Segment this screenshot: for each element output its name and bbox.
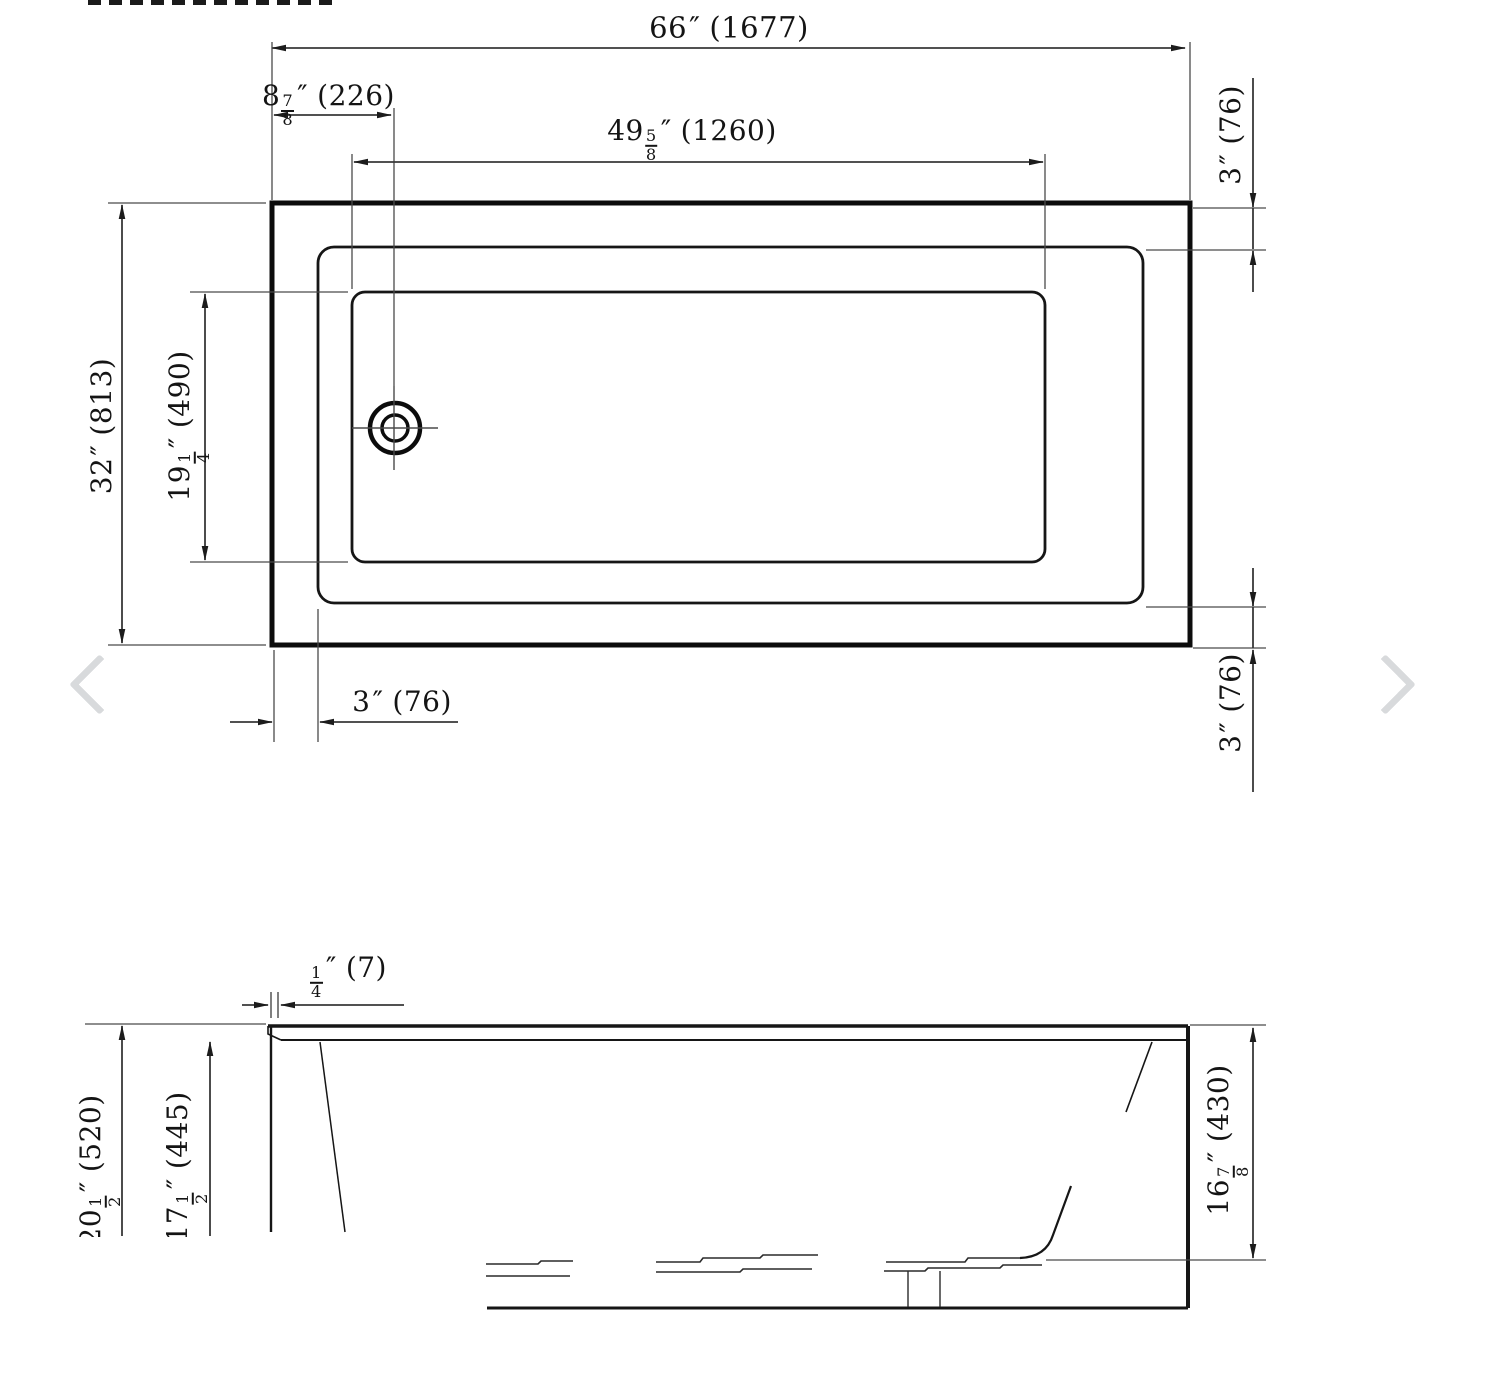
dim-rim-bottom-right: 3″(76)	[1217, 653, 1245, 753]
product-image-viewer: 66″(1677) 878″(226) 4958″(1260) 3″(76) 3…	[0, 0, 1501, 1377]
dim-depth-to-seat: 1678″(430)	[1205, 1064, 1251, 1215]
side-view-floor-lines	[486, 1255, 1042, 1307]
dim-overall-height: 2012″(520)	[77, 1094, 123, 1245]
side-view-dimension-lines	[85, 992, 1266, 1260]
drain-symbol	[352, 386, 438, 470]
bathtub-technical-drawing	[0, 0, 1501, 1377]
dim-rim-top-right: 3″(76)	[1217, 85, 1245, 185]
top-view-outline	[272, 203, 1190, 645]
white-overlay-patch	[0, 1237, 484, 1357]
dim-basin-width: 1914″(490)	[166, 350, 212, 501]
dim-lip-thickness: 14″(7)	[309, 954, 387, 1000]
dim-overall-width: 32″(813)	[88, 358, 116, 494]
dim-basin-length: 4958″(1260)	[607, 117, 777, 163]
dim-drain-offset: 878″(226)	[262, 82, 395, 128]
dim-rim-bottom-left: 3″(76)	[352, 688, 452, 716]
dim-overall-length: 66″(1677)	[649, 14, 809, 43]
dim-interior-depth: 1712″(445)	[164, 1091, 210, 1242]
